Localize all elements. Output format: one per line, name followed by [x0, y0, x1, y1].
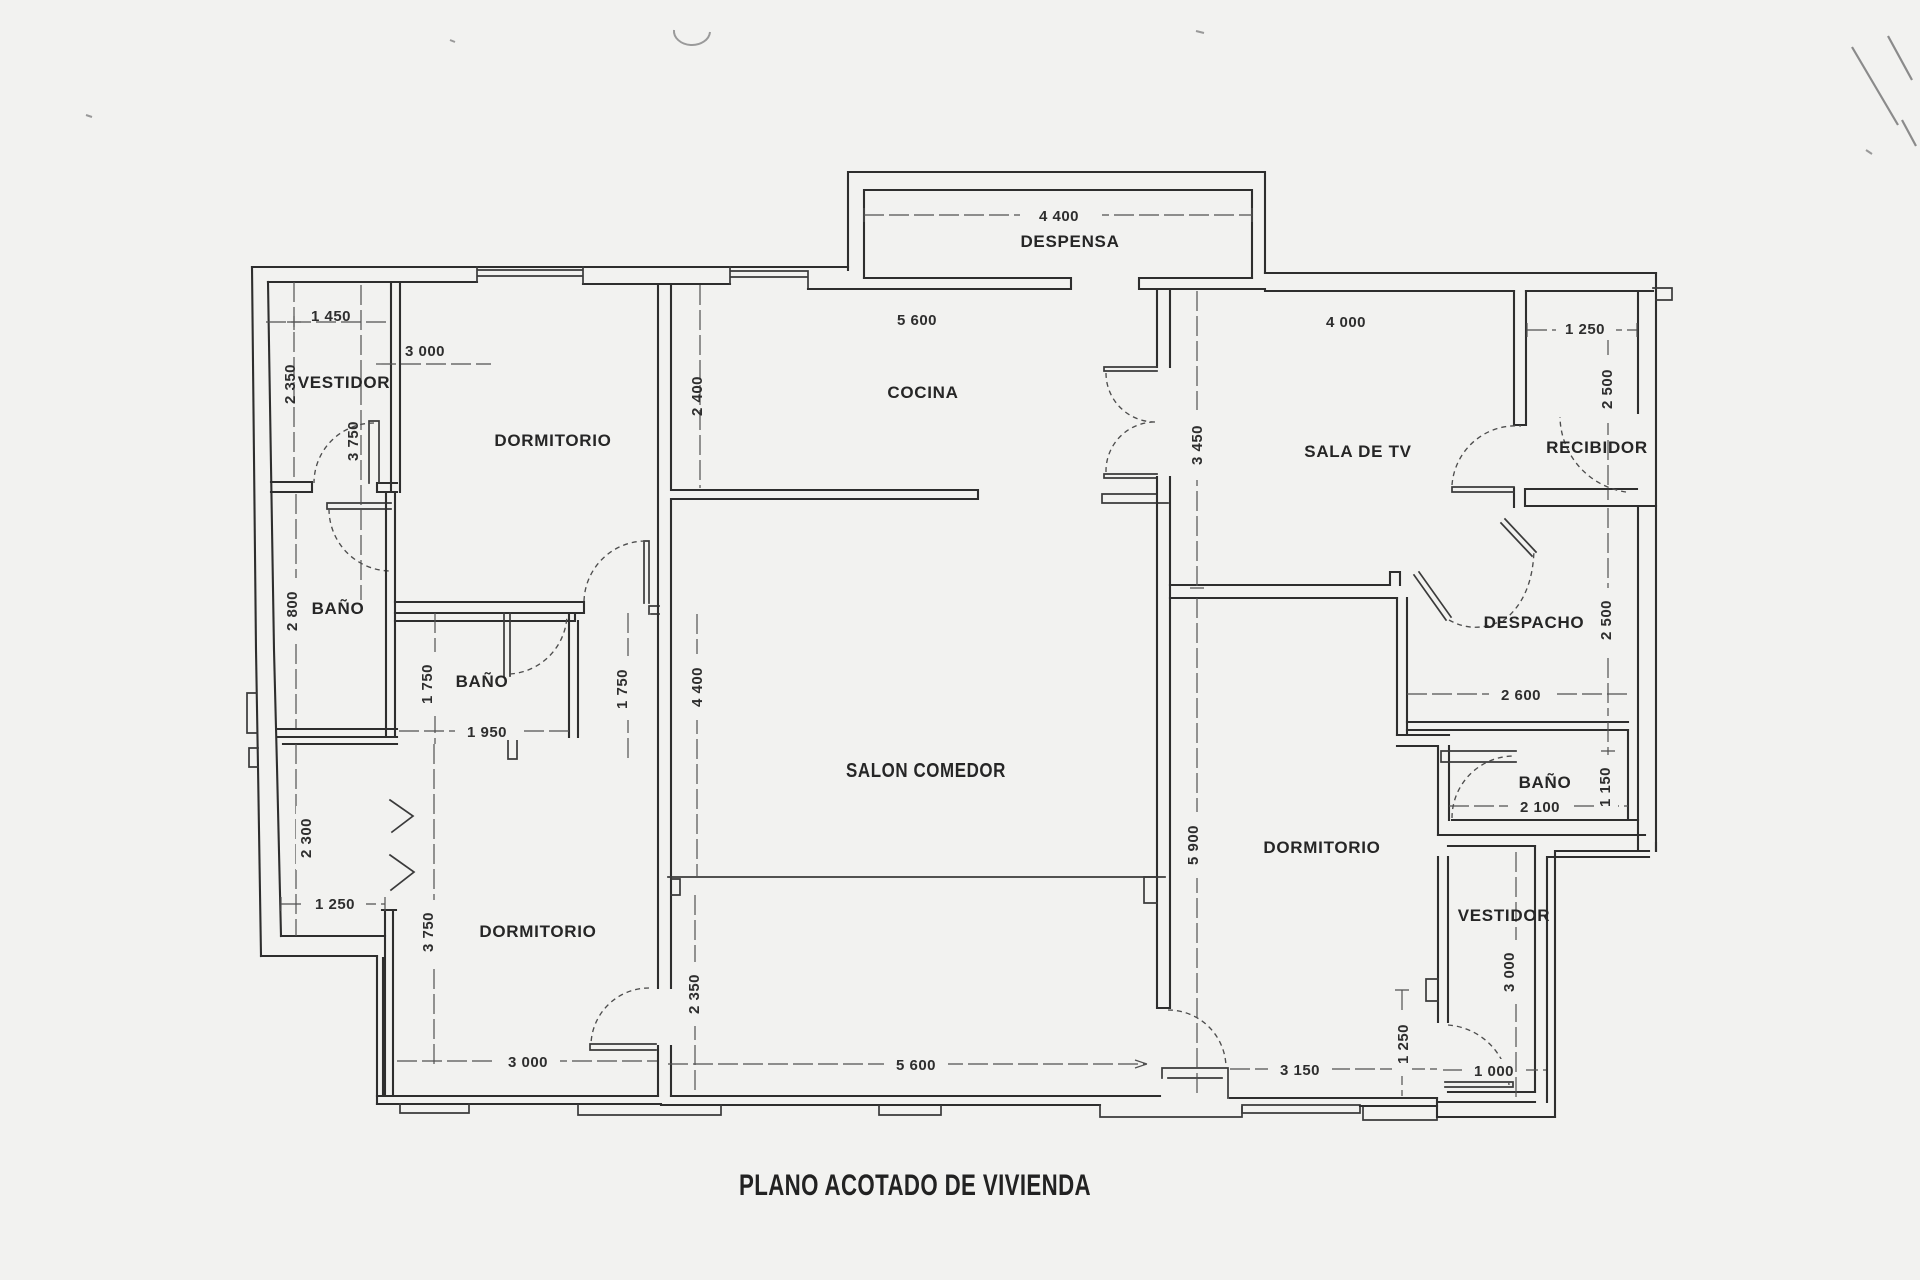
svg-text:BAÑO: BAÑO [312, 598, 365, 618]
svg-text:2 500: 2 500 [1599, 369, 1616, 409]
svg-text:3 150: 3 150 [1280, 1062, 1320, 1079]
svg-text:BAÑO: BAÑO [456, 671, 509, 691]
svg-text:1 450: 1 450 [311, 308, 351, 325]
svg-text:5 600: 5 600 [896, 1057, 936, 1074]
svg-text:DESPACHO: DESPACHO [1484, 613, 1585, 632]
svg-text:3 450: 3 450 [1189, 425, 1206, 465]
svg-text:COCINA: COCINA [887, 383, 958, 402]
svg-text:2 100: 2 100 [1520, 799, 1560, 816]
svg-text:2 800: 2 800 [284, 591, 301, 631]
svg-text:DESPENSA: DESPENSA [1020, 232, 1119, 251]
svg-text:3 000: 3 000 [1501, 952, 1518, 992]
svg-text:3 000: 3 000 [405, 343, 445, 360]
svg-text:RECIBIDOR: RECIBIDOR [1546, 438, 1648, 457]
svg-text:BAÑO: BAÑO [1519, 772, 1572, 792]
svg-text:4 400: 4 400 [689, 667, 706, 707]
svg-text:DORMITORIO: DORMITORIO [479, 922, 596, 941]
svg-text:VESTIDOR: VESTIDOR [1458, 906, 1551, 925]
svg-text:5 900: 5 900 [1185, 825, 1202, 865]
svg-text:DORMITORIO: DORMITORIO [494, 431, 611, 450]
svg-text:2 500: 2 500 [1598, 600, 1615, 640]
svg-text:1 250: 1 250 [315, 896, 355, 913]
svg-text:3 750: 3 750 [345, 421, 362, 461]
svg-text:2 600: 2 600 [1501, 687, 1541, 704]
svg-text:2 350: 2 350 [282, 364, 299, 404]
svg-text:PLANO ACOTADO DE VIVIENDA: PLANO ACOTADO DE VIVIENDA [739, 1169, 1091, 1202]
svg-text:4 000: 4 000 [1326, 314, 1366, 331]
svg-text:SALON COMEDOR: SALON COMEDOR [846, 760, 1006, 782]
svg-text:1 000: 1 000 [1474, 1063, 1514, 1080]
svg-text:1 250: 1 250 [1565, 321, 1605, 338]
svg-text:1 750: 1 750 [419, 664, 436, 704]
svg-text:1 250: 1 250 [1395, 1024, 1412, 1064]
svg-text:2 300: 2 300 [298, 818, 315, 858]
svg-text:1 150: 1 150 [1597, 767, 1614, 807]
svg-text:4 400: 4 400 [1039, 208, 1079, 225]
svg-text:DORMITORIO: DORMITORIO [1263, 838, 1380, 857]
svg-text:5 600: 5 600 [897, 312, 937, 329]
svg-text:3 000: 3 000 [508, 1054, 548, 1071]
svg-text:VESTIDOR: VESTIDOR [298, 373, 391, 392]
svg-text:2 400: 2 400 [689, 376, 706, 416]
svg-text:3 750: 3 750 [420, 912, 437, 952]
svg-text:1 750: 1 750 [614, 669, 631, 709]
svg-text:SALA DE TV: SALA DE TV [1304, 442, 1411, 461]
svg-text:2 350: 2 350 [686, 974, 703, 1014]
svg-text:1 950: 1 950 [467, 724, 507, 741]
